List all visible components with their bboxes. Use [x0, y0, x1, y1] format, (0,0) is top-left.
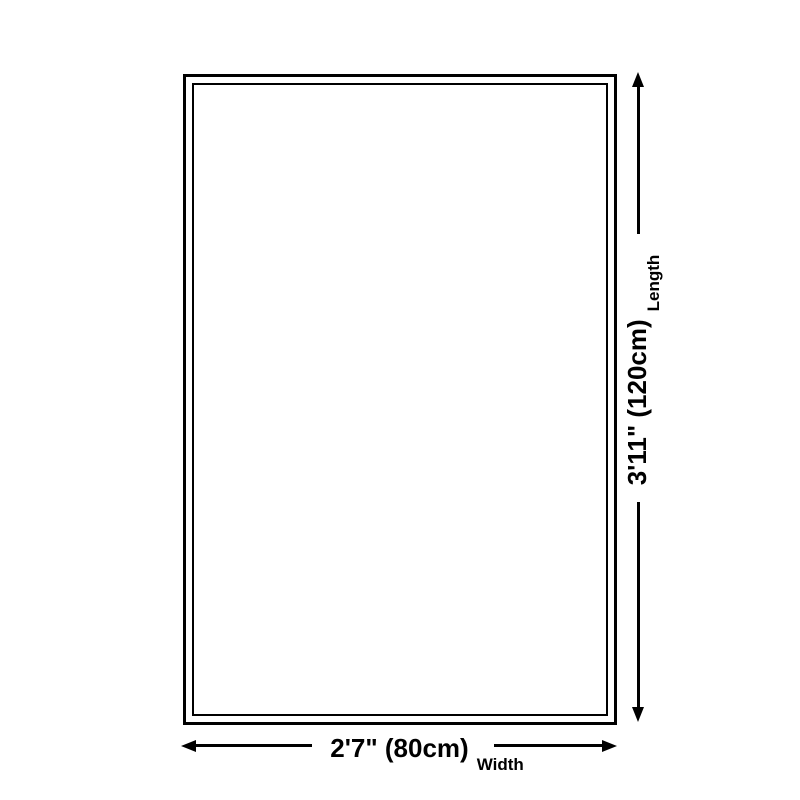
length-arrow-line-bottom: [637, 502, 640, 716]
length-value: 3'11" (120cm): [622, 319, 652, 485]
width-arrow-line-left: [193, 744, 312, 747]
length-arrow-line-top: [637, 85, 640, 234]
rug-inner-outline: [192, 83, 608, 716]
length-label: 3'11" (120cm)Length: [624, 255, 650, 486]
rug-outline: [183, 74, 617, 725]
width-label: 2'7" (80cm)Width: [330, 735, 524, 761]
arrow-right-icon: [602, 740, 617, 752]
width-value: 2'7" (80cm): [330, 733, 468, 763]
width-axis-label: Width: [477, 755, 524, 774]
arrow-down-icon: [632, 707, 644, 722]
length-axis-label: Length: [644, 255, 663, 312]
size-diagram: 3'11" (120cm)Length 2'7" (80cm)Width: [0, 0, 800, 800]
